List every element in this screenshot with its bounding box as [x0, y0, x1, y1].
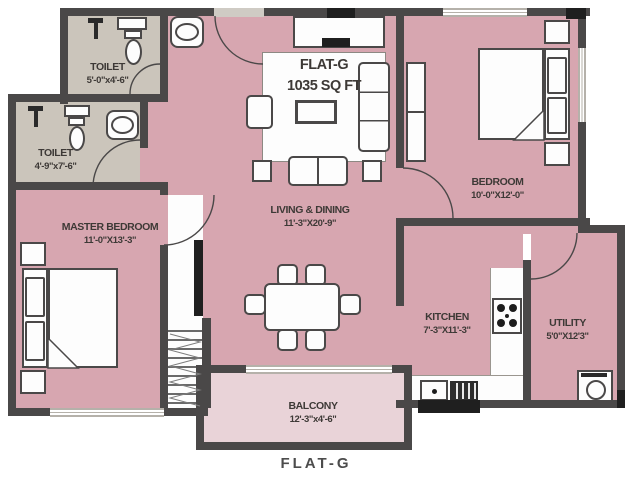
room-label-utility: UTILITY 5'0"X12'3" [525, 317, 610, 343]
window [443, 8, 527, 17]
entrance-opening [214, 8, 264, 17]
wall [523, 400, 625, 408]
tv-icon [322, 38, 350, 47]
armchair [246, 95, 273, 129]
dining-table [264, 283, 340, 331]
room-label-master-bedroom: MASTER BEDROOM 11'-0"X13'-3" [30, 221, 190, 247]
duct-panel [194, 240, 203, 316]
side-table-left [252, 160, 272, 182]
wardrobe [406, 62, 426, 162]
flat-area: 1035 SQ FT [262, 76, 386, 97]
wall [140, 102, 148, 148]
washing-machine-icon [577, 370, 613, 404]
dining-chair [277, 329, 298, 351]
dining-chair [305, 329, 326, 351]
pillow [547, 97, 567, 134]
wall [396, 8, 404, 168]
plan-caption: FLAT-G [216, 455, 416, 472]
sliding-balcony-door [246, 365, 392, 374]
master-bed-mattress [48, 268, 118, 368]
room-label-balcony: BALCONY 12'-3"x4'-6" [233, 400, 393, 426]
kitchen-sink [420, 380, 448, 401]
side-table-right [362, 160, 382, 182]
nightstand [544, 20, 570, 44]
wall [8, 182, 168, 190]
utility-doorway-floor [523, 226, 578, 234]
room-label-living-dining: LIVING & DINING 11'-3"X20'-9" [230, 204, 390, 230]
flat-title: FLAT-G 1035 SQ FT [262, 55, 386, 97]
dining-chair [244, 294, 266, 315]
dining-chair [339, 294, 361, 315]
column-block [566, 8, 586, 19]
room-label-bedroom: BEDROOM 10'-0"X12'-0" [420, 176, 575, 202]
nightstand [20, 370, 46, 394]
coffee-table [295, 100, 337, 124]
nightstand [544, 142, 570, 166]
wall [617, 225, 625, 408]
wash-sink [64, 105, 90, 117]
wall [160, 8, 168, 102]
wc-icon [68, 117, 85, 126]
window [50, 408, 164, 417]
window [578, 48, 586, 122]
pillow [25, 321, 45, 361]
flat-name: FLAT-G [262, 55, 386, 76]
wall [60, 8, 68, 104]
room-label-toilet-left: TOILET 4'-9"x7'-6" [8, 147, 103, 173]
wash-basin-icon [111, 116, 134, 134]
wc-icon [124, 30, 142, 39]
wall [396, 226, 404, 306]
wall [196, 365, 204, 450]
stove-icon [492, 298, 522, 334]
wall [396, 218, 590, 226]
wall [160, 245, 168, 408]
column-block [617, 390, 625, 408]
wall [404, 365, 412, 450]
wall [60, 94, 168, 102]
sofa-two-seater [288, 156, 348, 186]
room-label-toilet-top: TOILET 5'-0"x4'-6" [60, 61, 155, 87]
wall [160, 182, 168, 195]
wall [8, 94, 68, 102]
pillow [25, 277, 45, 317]
wall [8, 94, 16, 416]
wash-basin-icon [175, 23, 199, 41]
main-door-leaf [327, 8, 355, 18]
pillow [547, 57, 567, 94]
wall [196, 442, 412, 450]
wall-ledge [418, 400, 480, 413]
bed-mattress [478, 48, 544, 140]
floor-plan: FLAT-G 1035 SQ FT TOILET 5'-0"x4'-6" TOI… [0, 0, 635, 481]
wash-sink [117, 17, 147, 30]
room-label-kitchen: KITCHEN 7'-3"X11'-3" [404, 311, 490, 337]
dish-rack [450, 381, 478, 401]
